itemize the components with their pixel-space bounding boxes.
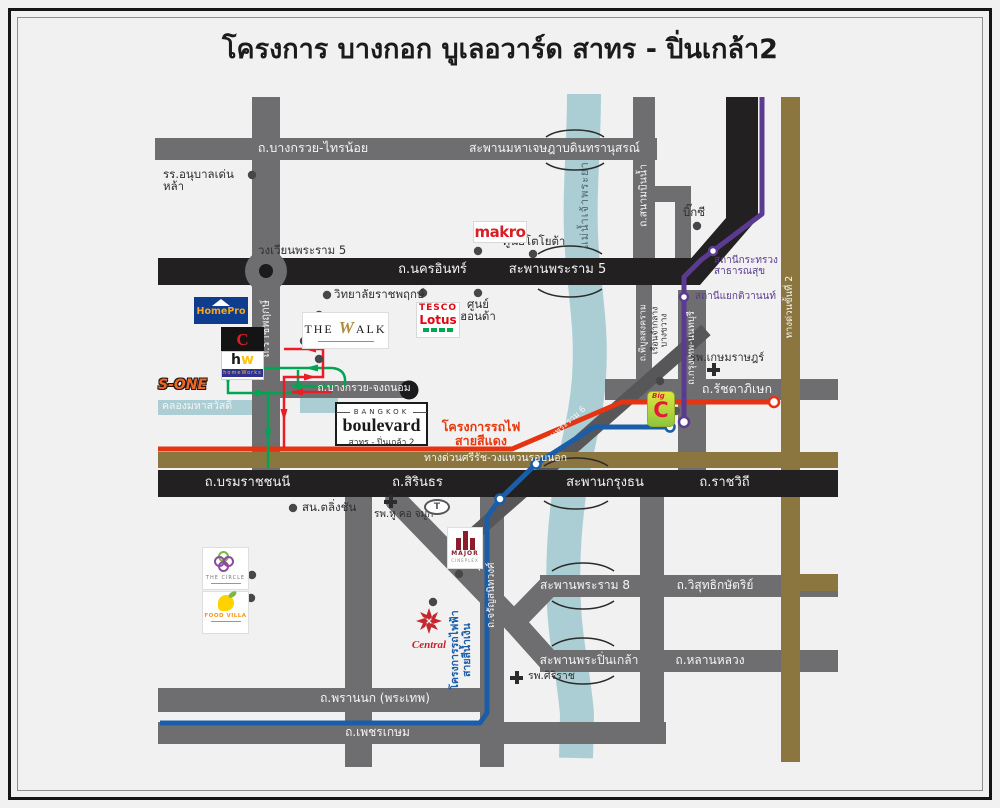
gold-rule-icon xyxy=(318,341,374,342)
poi-label-big-c: บิ๊กซี xyxy=(683,206,723,218)
green-rule-icon xyxy=(211,583,241,584)
poi-label-siriraj-hospital: รพ.ศิริราช xyxy=(528,671,590,682)
road-label-expressway-2: ทางด่วนขั้นที่ 2 xyxy=(785,262,795,352)
bridge-label-jetsada: สะพานมหาเจษฎาบดินทรานุสรณ์ xyxy=(447,142,662,155)
road-label-wisutthikasat: ถ.วิสุทธิกษัตริย์ xyxy=(660,579,770,592)
river-label-chao-phraya: แม่น้ำเจ้าพระยา xyxy=(579,155,591,255)
canal-mahasawat-2 xyxy=(300,398,338,413)
central-logo: Central xyxy=(406,606,452,654)
major-cineplex-logo: MAJOR CINEPLEX xyxy=(447,527,483,569)
road-label-sirinthon: ถ.สิรินธร xyxy=(375,476,460,490)
s-one-logo: S-ONE xyxy=(158,377,214,397)
toyota-logo: T xyxy=(424,499,450,515)
circle-flower-icon xyxy=(214,551,238,575)
makro-logo: makro xyxy=(473,221,527,243)
poi-label-taling-chan-police: สน.ตลิ่งชัน xyxy=(302,501,372,513)
road-label-sanambin-nam: ถ.สนามบินน้ำ xyxy=(638,151,649,241)
poi-label-bangkwang: เรือนจำกลาง บางขวาง xyxy=(652,297,671,363)
poi-label-rajapruek-college: วิทยาลัยราชพฤกษ์ xyxy=(334,288,449,300)
homeworks-logo: hw homeWorks xyxy=(221,351,264,380)
road-label-ratchada: ถ.รัชดาภิเษก xyxy=(682,382,792,395)
bridge-label-rama5: สะพานพระราม 5 xyxy=(500,263,615,277)
bangkok-boulevard-logo: BANGKOK boulevard สาทร - ปิ่นเกล้า 2 xyxy=(335,402,428,446)
food-villa-logo: FOOD VILLA xyxy=(202,591,249,634)
road-label-lan-luang: ถ.หลานหลวง xyxy=(660,654,760,667)
hospital-cross-icon xyxy=(384,495,397,508)
bridge-label-krungthon: สะพานกรุงธน xyxy=(550,476,660,490)
the-circle-logo: THE CIRCLE xyxy=(202,547,249,590)
red-line-label-1: โครงการรถไฟ xyxy=(437,420,525,433)
hospital-cross-icon xyxy=(510,671,523,684)
road-label-phetkasem: ถ.เพชรเกษม xyxy=(320,726,435,739)
the-walk-logo: THE WALK xyxy=(302,312,389,349)
road-label-piboon-songkram: ถ.พิบูลสงคราม xyxy=(639,288,648,378)
blue-line-label: โครงการรถไฟฟ้า สายสีน้ำเงิน xyxy=(449,595,473,705)
fruit-icon xyxy=(218,595,234,611)
major-building-icon xyxy=(448,531,482,550)
big-c-logo: Big C xyxy=(647,391,675,427)
road-label-nakhon-in: ถ.นครอินทร์ xyxy=(385,263,480,277)
central-flower-icon xyxy=(414,606,444,636)
bridge-label-pinklao: สะพานพระปิ่นเกล้า xyxy=(528,654,650,667)
poi-label-wongwian-rama5: วงเวียนพระราม 5 xyxy=(258,244,358,256)
bridge-label-rama8: สะพานพระราม 8 xyxy=(535,579,635,592)
tesco-lotus-logo: TESCO Lotus xyxy=(416,302,460,338)
poi-label-kasemrad-hospital: รพ.เกษมราษฎร์ xyxy=(690,352,780,364)
canal-label: คลองมหาสวัสดิ์ xyxy=(162,401,258,412)
red-line-label-2: สายสีแดง xyxy=(437,434,525,447)
road-label-bangkruai-sainoi: ถ.บางกรวย-ไทรน้อย xyxy=(228,141,398,154)
road-label-sirat-expressway: ทางด่วนศรีรัช-วงแหวนรอบนอก xyxy=(413,453,578,464)
map-canvas xyxy=(0,0,1000,808)
poi-label-denla-school: รร.อนุบาลเด่นหล้า xyxy=(163,168,249,192)
road-label-chongthanom: ถ.บางกรวย-จงถนอม xyxy=(300,383,428,394)
map-page: โครงการ บางกอก บูเลอวาร์ด สาทร - ปิ่นเกล… xyxy=(0,0,1000,808)
green-rule-icon xyxy=(211,621,241,622)
road-label-krungthep-nonthaburi: ถ.กรุงเทพ-นนทบุรี xyxy=(687,293,697,403)
roof-icon xyxy=(212,299,230,306)
road-label-borommaratchachonnani: ถ.บรมราชชนนี xyxy=(190,476,305,490)
tesco-stripes-icon xyxy=(423,328,453,332)
road-label-ratchawithi: ถ.ราชวิถี xyxy=(682,476,767,490)
road-label-jaransanitwong: ถ.จรัญสนิทวงศ์ xyxy=(487,545,498,645)
homepro-logo: HomePro xyxy=(194,297,248,324)
rama5-roundabout-center xyxy=(259,264,273,278)
hospital-cross-icon xyxy=(707,363,720,376)
road-label-prannok: ถ.พรานนก (พระเทพ) xyxy=(310,692,440,705)
